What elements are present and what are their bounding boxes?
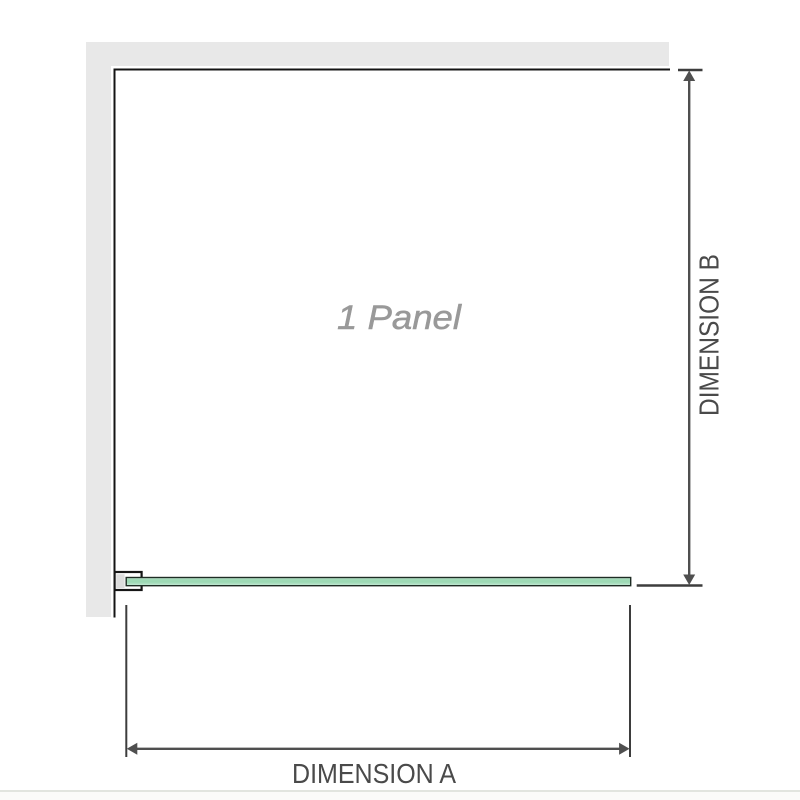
svg-text:1 Panel: 1 Panel (337, 299, 463, 337)
svg-text:DIMENSION A: DIMENSION A (292, 758, 457, 789)
svg-text:DIMENSION B: DIMENSION B (694, 254, 725, 416)
